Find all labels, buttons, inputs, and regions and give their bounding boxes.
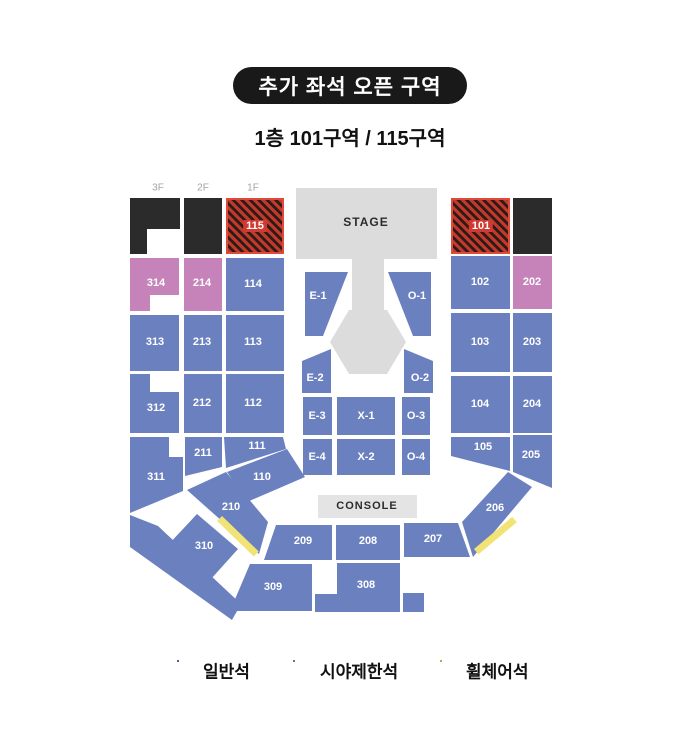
section-112[interactable] — [226, 374, 284, 433]
section-209[interactable] — [264, 525, 332, 560]
page-subtitle: 1층 101구역 / 115구역 — [0, 122, 700, 151]
section-115[interactable] — [226, 198, 284, 254]
section-X-2[interactable] — [337, 439, 395, 475]
section-208[interactable] — [336, 525, 400, 560]
section-O-4[interactable] — [402, 439, 430, 475]
legend-label-restricted: 시야제한석 — [320, 658, 398, 683]
section-113[interactable] — [226, 315, 284, 371]
closed-block-2f — [184, 198, 222, 254]
section-E-4[interactable] — [303, 439, 332, 475]
section-102[interactable] — [451, 256, 510, 309]
section-O-3[interactable] — [402, 397, 430, 435]
section-202[interactable] — [513, 256, 552, 309]
section-104[interactable] — [451, 376, 510, 433]
legend-swatch-general — [177, 660, 179, 662]
legend-swatch-restricted — [293, 660, 295, 662]
section-X-1[interactable] — [337, 397, 395, 435]
section-114[interactable] — [226, 258, 284, 311]
console — [318, 495, 417, 518]
section-103[interactable] — [451, 313, 510, 372]
seat-map-page: 추가 좌석 오픈 구역 1층 101구역 / 115구역 STAGECONSOL… — [0, 0, 700, 733]
section-101[interactable] — [451, 198, 510, 254]
legend-label-general: 일반석 — [203, 658, 250, 683]
section-212[interactable] — [184, 374, 222, 433]
section-213[interactable] — [184, 315, 222, 371]
legend-swatch-wheelchair — [440, 660, 442, 662]
section-313[interactable] — [130, 315, 179, 371]
legend-label-wheelchair: 휠체어석 — [466, 658, 529, 683]
section-204[interactable] — [513, 376, 552, 433]
section-214[interactable] — [184, 258, 222, 311]
section-E-3[interactable] — [303, 397, 332, 435]
stage-runway — [352, 259, 384, 316]
page-title-badge: 추가 좌석 오픈 구역 — [233, 67, 467, 104]
closed-block-right — [513, 198, 552, 254]
stage — [296, 188, 437, 259]
section-308-annex[interactable] — [403, 593, 424, 612]
section-203[interactable] — [513, 313, 552, 372]
